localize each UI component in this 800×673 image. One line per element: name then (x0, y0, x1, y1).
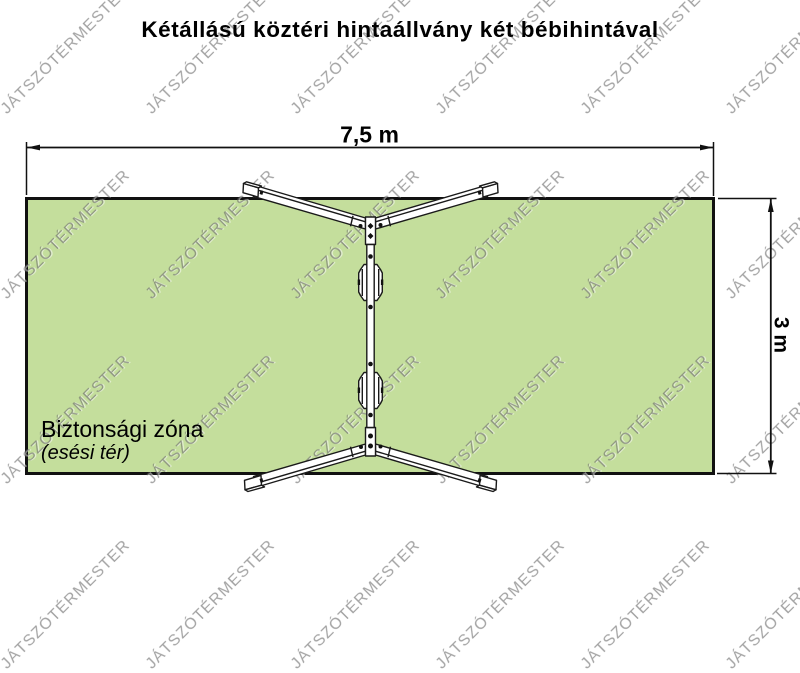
svg-text:3 m: 3 m (770, 317, 793, 353)
svg-text:(esési tér): (esési tér) (41, 442, 130, 464)
svg-text:7,5 m: 7,5 m (340, 122, 399, 148)
svg-text:Biztonsági zóna: Biztonsági zóna (41, 416, 204, 442)
